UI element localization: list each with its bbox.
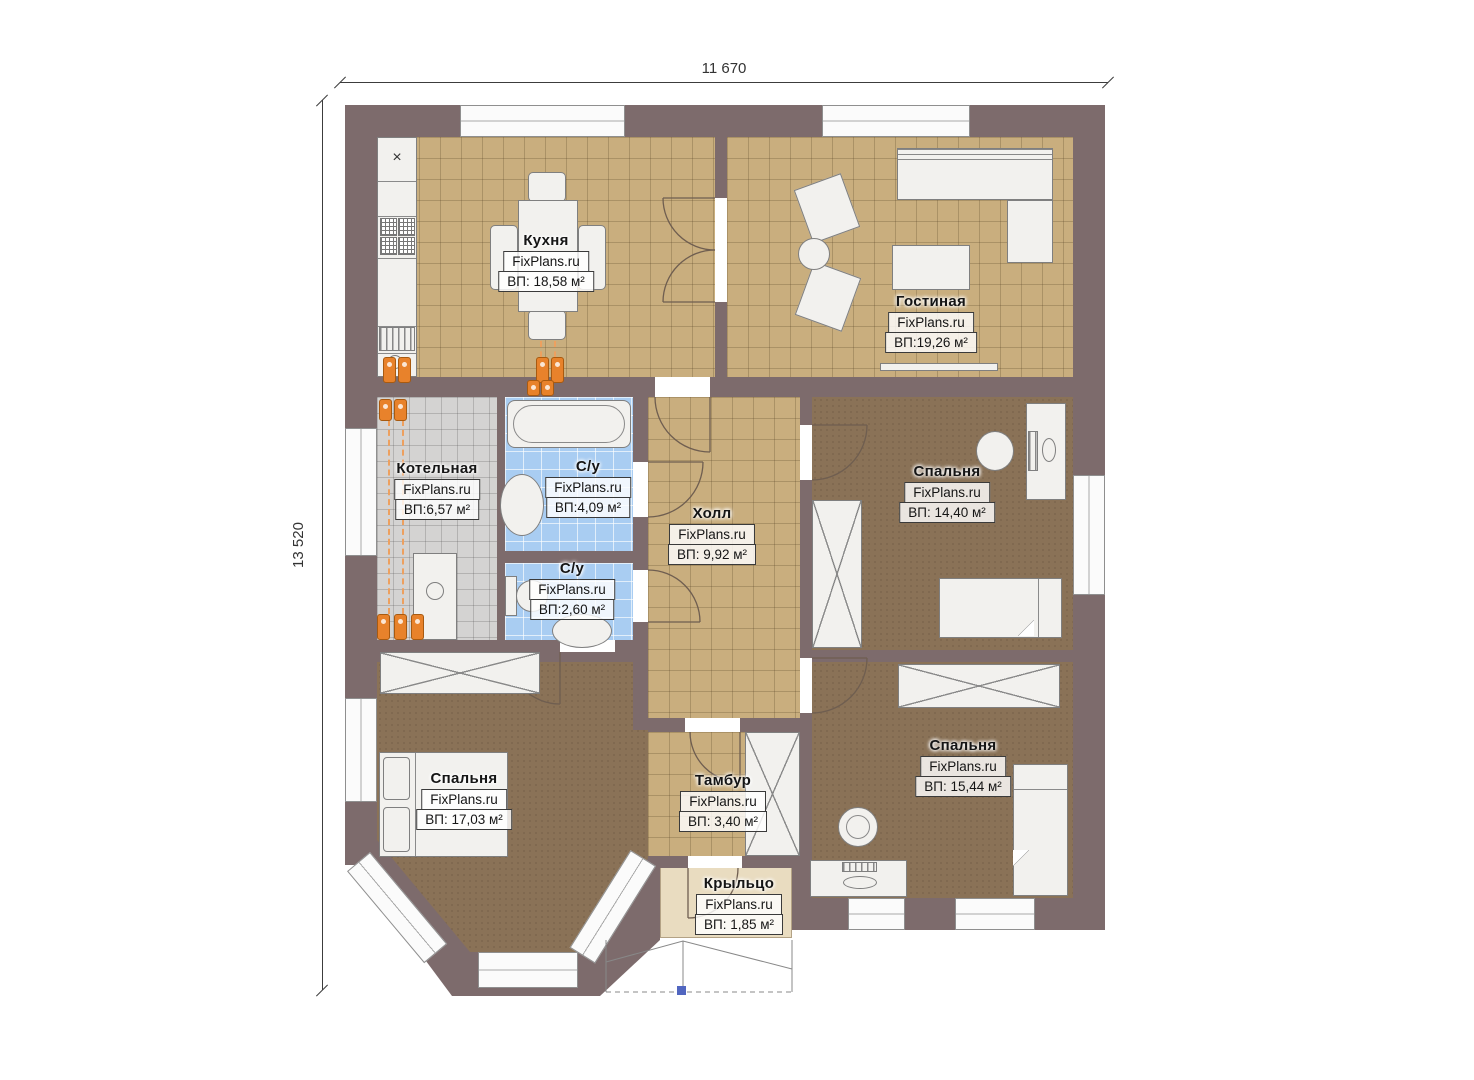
watermark: FixPlans.ru	[680, 791, 766, 812]
room-label-boiler: Котельная FixPlans.ru ВП:6,57 м²	[394, 460, 480, 520]
room-area: ВП: 17,03 м²	[416, 809, 512, 830]
watermark: FixPlans.ru	[888, 312, 974, 333]
watermark: FixPlans.ru	[529, 579, 615, 600]
room-area: ВП: 9,92 м²	[668, 544, 756, 565]
boiler-gauge	[426, 582, 444, 600]
room-name: Спальня	[416, 770, 512, 787]
watermark: FixPlans.ru	[545, 477, 631, 498]
room-name: С/у	[529, 560, 615, 577]
room-name: Гостиная	[885, 293, 977, 310]
room-name: Крыльцо	[695, 875, 783, 892]
vent-hood-icon: ×	[380, 142, 414, 174]
radiator	[377, 614, 390, 640]
room-area: ВП: 14,40 м²	[899, 502, 995, 523]
radiator	[411, 614, 424, 640]
room-label-kitchen: Кухня FixPlans.ru ВП: 18,58 м²	[498, 232, 594, 292]
room-label-porch: Крыльцо FixPlans.ru ВП: 1,85 м²	[695, 875, 783, 935]
room-name: Тамбур	[679, 772, 767, 789]
pillow	[383, 807, 410, 852]
wardrobe	[380, 652, 540, 694]
radiator	[398, 357, 411, 383]
counter-divider	[378, 353, 416, 354]
radiator	[541, 380, 554, 396]
room-name: Котельная	[394, 460, 480, 477]
bed	[939, 578, 1062, 638]
bed-pillow-line	[1038, 579, 1039, 637]
room-label-bedroom3: Спальня FixPlans.ru ВП: 15,44 м²	[915, 737, 1011, 797]
room-name: Спальня	[899, 463, 995, 480]
radiator	[379, 399, 392, 421]
watermark: FixPlans.ru	[696, 894, 782, 915]
bed-pillow-line	[1014, 789, 1067, 790]
room-label-bedroom2: Спальня FixPlans.ru ВП: 17,03 м²	[416, 770, 512, 830]
entry-marker	[677, 986, 686, 995]
bed	[1013, 764, 1068, 896]
desk-keyboard	[842, 862, 877, 872]
chair-seat	[846, 815, 870, 839]
desk-mouse	[1042, 438, 1056, 462]
round-table	[798, 238, 830, 270]
watermark: FixPlans.ru	[503, 251, 589, 272]
chair	[528, 310, 566, 340]
room-label-living: Гостиная FixPlans.ru ВП:19,26 м²	[885, 293, 977, 353]
heating-pipe	[388, 420, 390, 614]
counter-divider	[378, 216, 416, 217]
stove-burner	[398, 218, 415, 236]
radiator	[383, 357, 396, 383]
wardrobe	[812, 500, 862, 648]
pillow	[383, 757, 410, 800]
watermark: FixPlans.ru	[394, 479, 480, 500]
room-name: Спальня	[915, 737, 1011, 754]
blanket-fold	[1013, 850, 1029, 866]
blanket-fold	[1018, 620, 1034, 636]
radiator	[551, 357, 564, 383]
washbasin	[500, 474, 544, 536]
desk-item	[843, 876, 877, 889]
room-area: ВП: 15,44 м²	[915, 776, 1011, 797]
radiator	[394, 614, 407, 640]
stove-burner	[398, 237, 415, 255]
sofa	[897, 148, 1053, 200]
room-name: С/у	[545, 458, 631, 475]
desk-chair	[838, 807, 878, 847]
bathtub	[507, 400, 631, 448]
wardrobe	[898, 664, 1060, 708]
room-label-bath2: С/у FixPlans.ru ВП:2,60 м²	[529, 560, 615, 620]
counter-divider	[378, 181, 416, 182]
bathtub-basin	[513, 405, 625, 443]
watermark: FixPlans.ru	[920, 756, 1006, 777]
watermark: FixPlans.ru	[421, 789, 507, 810]
radiator	[394, 399, 407, 421]
sofa-backrest	[898, 149, 1052, 161]
room-area: ВП:2,60 м²	[530, 599, 614, 620]
radiator	[527, 380, 540, 396]
watermark: FixPlans.ru	[904, 482, 990, 503]
room-name: Холл	[668, 505, 756, 522]
sofa-chaise	[1007, 200, 1053, 263]
room-label-bedroom1: Спальня FixPlans.ru ВП: 14,40 м²	[899, 463, 995, 523]
room-area: ВП: 1,85 м²	[695, 914, 783, 935]
desk-monitor	[1028, 431, 1038, 471]
stove-burner	[380, 237, 397, 255]
room-area: ВП:6,57 м²	[395, 499, 479, 520]
room-area: ВП:4,09 м²	[546, 497, 630, 518]
room-area: ВП: 18,58 м²	[498, 271, 594, 292]
kitchen-boiler-unit	[379, 327, 415, 351]
floor-plan-canvas: 11 670 13 520	[0, 0, 1474, 1080]
room-area: ВП:19,26 м²	[885, 332, 977, 353]
counter-divider	[378, 258, 416, 259]
room-label-bath1: С/у FixPlans.ru ВП:4,09 м²	[545, 458, 631, 518]
stove-burner	[380, 218, 397, 236]
room-name: Кухня	[498, 232, 594, 249]
tv-shelf	[880, 363, 998, 371]
coffee-table	[892, 245, 970, 290]
room-area: ВП: 3,40 м²	[679, 811, 767, 832]
porch-steps	[606, 940, 792, 992]
watermark: FixPlans.ru	[669, 524, 755, 545]
chair	[528, 172, 566, 202]
room-label-tambur: Тамбур FixPlans.ru ВП: 3,40 м²	[679, 772, 767, 832]
room-label-hall: Холл FixPlans.ru ВП: 9,92 м²	[668, 505, 756, 565]
